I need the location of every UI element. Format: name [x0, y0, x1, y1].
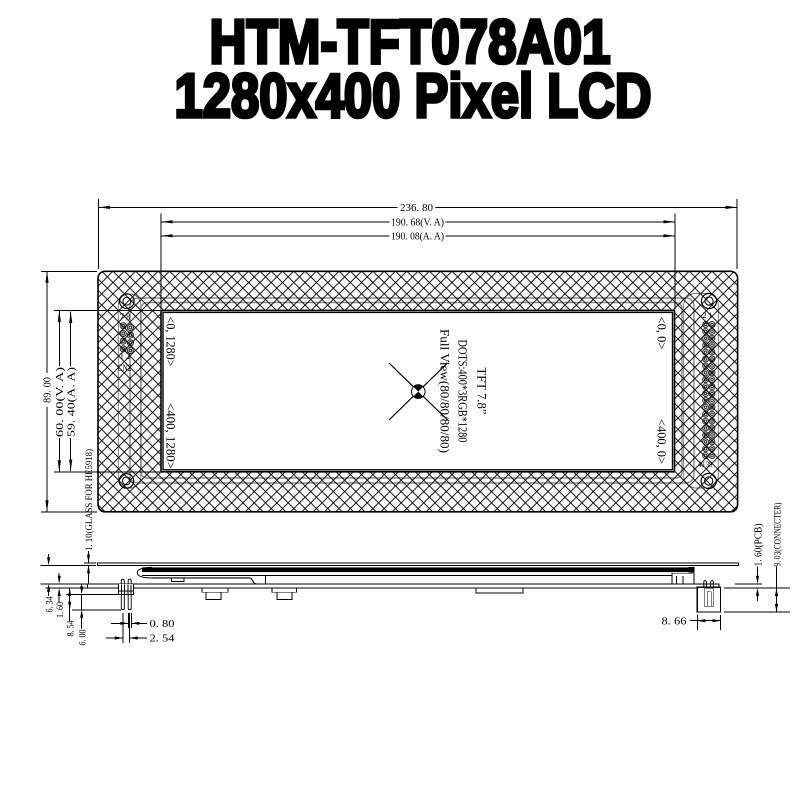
svg-text:<0, 1280>: <0, 1280>	[164, 317, 179, 367]
svg-text:1280x400 Pixel LCD: 1280x400 Pixel LCD	[175, 62, 652, 131]
svg-text:1. 60(PCB): 1. 60(PCB)	[754, 524, 765, 567]
svg-text:0. 80: 0. 80	[150, 618, 176, 630]
svg-text:6. 34: 6. 34	[46, 596, 56, 612]
svg-text:2. 54: 2. 54	[150, 633, 176, 645]
svg-text:<0, 0>: <0, 0>	[655, 317, 670, 350]
svg-text:<400, 1280>: <400, 1280>	[164, 403, 179, 469]
svg-text:1. 10(GLASS FOR HE5918): 1. 10(GLASS FOR HE5918)	[84, 449, 95, 551]
svg-text:236. 80: 236. 80	[400, 202, 434, 214]
svg-text:190. 08(A. A): 190. 08(A. A)	[391, 230, 444, 242]
svg-text:Full View(80/80/80/80): Full View(80/80/80/80)	[438, 329, 452, 453]
svg-text:<400, 0>: <400, 0>	[655, 419, 670, 464]
svg-text:6. 00: 6. 00	[79, 629, 89, 645]
svg-text:60. 00(V. A): 60. 00(V. A)	[54, 367, 66, 437]
svg-text:TFT 7.8”: TFT 7.8”	[475, 368, 490, 415]
svg-text:9. 03(CONNECTER): 9. 03(CONNECTER)	[773, 503, 783, 567]
svg-text:1. 60: 1. 60	[56, 602, 66, 618]
svg-text:8. 54: 8. 54	[67, 620, 77, 636]
svg-text:190. 68(V. A): 190. 68(V. A)	[391, 216, 444, 228]
svg-text:DOTS:400*3RGB*1280: DOTS:400*3RGB*1280	[456, 340, 470, 443]
svg-text:89. 00: 89. 00	[42, 377, 54, 403]
svg-text:8. 66: 8. 66	[662, 616, 688, 628]
svg-text:59. 40(A. A): 59. 40(A. A)	[65, 367, 77, 437]
